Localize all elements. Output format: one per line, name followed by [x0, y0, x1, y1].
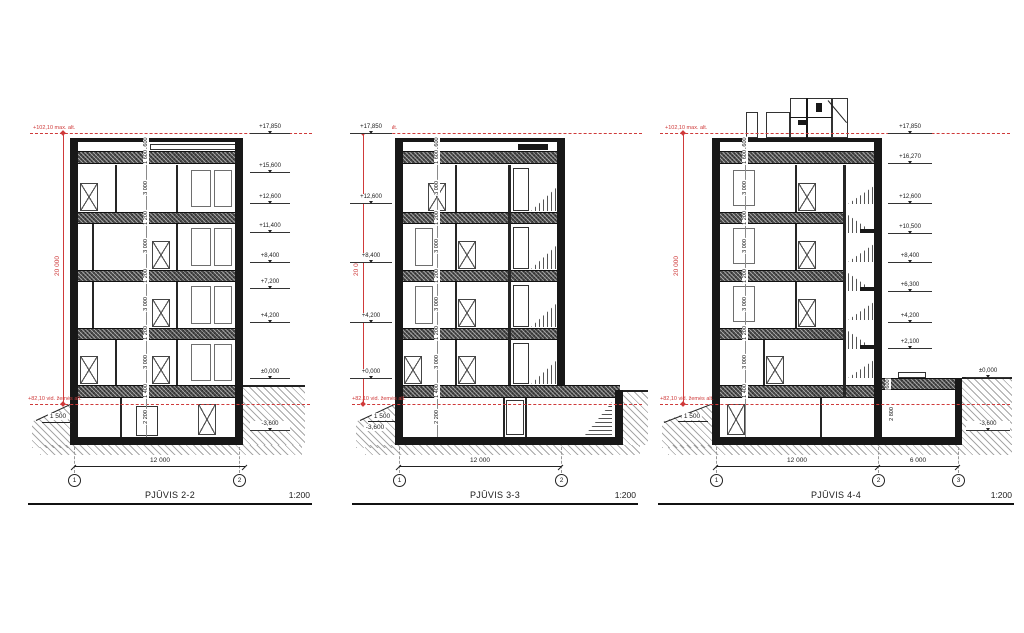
- floor-dim: 3 000: [434, 354, 440, 370]
- level-marker: +11,400: [250, 223, 290, 233]
- level-label: +4,200: [362, 313, 381, 319]
- roof-slab: [403, 151, 557, 164]
- level-label: +0,000: [362, 369, 381, 375]
- roof-coping: [395, 138, 565, 142]
- window-symbol: [191, 228, 211, 266]
- floor-dim: 3 000: [742, 180, 748, 196]
- window-symbol: [214, 286, 232, 324]
- level-label: +10,500: [899, 224, 921, 230]
- level-marker: +4,200: [250, 313, 290, 323]
- floor-dim: 1 200: [143, 210, 149, 226]
- red-marker-icon: [360, 401, 366, 407]
- floor-dim: 1 400: [143, 383, 149, 399]
- level-triangle-icon: [908, 289, 912, 292]
- red-max-altitude-line: [352, 133, 642, 134]
- level-label: ±0,000: [261, 369, 279, 375]
- dim-line: [368, 421, 396, 422]
- floor-dim: 1 200: [434, 210, 440, 226]
- basement-stair: [585, 402, 612, 435]
- level-label: ±0,000: [979, 368, 997, 374]
- door-symbol: [458, 299, 476, 327]
- red-height-dim-line: [63, 133, 64, 404]
- grid-bubble-1: 1: [68, 474, 81, 487]
- level-label: +8,400: [362, 253, 381, 259]
- scale-label: 1:200: [950, 490, 1012, 500]
- grid-dim-line: [399, 466, 561, 467]
- level-triangle-icon: [908, 231, 912, 234]
- floor-dim: 1 600: [434, 149, 440, 165]
- interior-wall: [455, 165, 457, 212]
- grid-bubble-1: 1: [710, 474, 723, 487]
- level-label: +6,300: [901, 282, 920, 288]
- ground-offset-dim: 1 500: [48, 413, 68, 420]
- level-label: +11,400: [259, 223, 280, 229]
- scale-label: 1:200: [580, 490, 636, 500]
- ground-hatch: [40, 445, 302, 455]
- level-marker: +4,200: [350, 313, 392, 323]
- grid-dim-label: 12 000: [468, 457, 492, 464]
- level-marker: +6,300: [888, 282, 932, 292]
- roof-structure-panel: [816, 103, 822, 112]
- stair-flight: [848, 186, 874, 204]
- terrain-line: [243, 385, 305, 387]
- floor-slab: [720, 270, 843, 282]
- floor-dim: 1 200: [143, 268, 149, 284]
- ground-alt-label: +82,10 vid. žemės alt.: [660, 396, 714, 402]
- level-triangle-icon: [268, 428, 272, 431]
- level-label: +12,600: [259, 194, 281, 200]
- door-symbol: [727, 404, 745, 435]
- level-triangle-icon: [268, 286, 272, 289]
- interior-wall: [455, 340, 457, 385]
- interior-wall: [795, 282, 797, 328]
- red-marker-icon: [680, 130, 686, 136]
- level-marker: +8,400: [350, 253, 392, 263]
- floor-dim: 3 000: [742, 296, 748, 312]
- level-triangle-icon: [908, 131, 912, 134]
- door-symbol: [766, 356, 784, 384]
- terrain-line: [623, 390, 648, 392]
- window-symbol: [214, 170, 232, 207]
- title-underline: [658, 503, 1014, 505]
- level-label: +4,200: [261, 313, 280, 319]
- stair-flight: [531, 187, 557, 211]
- foundation-slab: [70, 437, 243, 445]
- red-marker-icon: [60, 130, 66, 136]
- ground-hatch: [662, 404, 712, 448]
- level-triangle-icon: [369, 201, 373, 204]
- interior-wall: [176, 224, 178, 270]
- interior-wall: [176, 340, 178, 385]
- ground-alt-label: +82,10 vid. žemės alt.: [28, 396, 82, 402]
- grid-dim-label: 12 000: [148, 457, 172, 464]
- floor-dim: 1 200: [434, 268, 440, 284]
- extension-line: [561, 447, 562, 473]
- roof-structure: [766, 112, 790, 138]
- interior-wall: [176, 165, 178, 212]
- roof-coping: [70, 138, 243, 142]
- level-label: -3,600: [261, 421, 278, 427]
- extension-line: [239, 447, 240, 473]
- extension-line: [74, 447, 75, 473]
- extension-line: [958, 447, 959, 473]
- level-triangle-icon: [369, 320, 373, 323]
- grid-dim-line: [878, 466, 958, 467]
- grid-bubble-2: 2: [233, 474, 246, 487]
- red-max-altitude-line: [660, 133, 1010, 134]
- window-symbol: [214, 344, 232, 381]
- level-marker: +16,270: [888, 154, 932, 164]
- door-symbol: [152, 356, 170, 384]
- roof-slab: [78, 151, 235, 164]
- depth-label: -3,600: [364, 424, 386, 431]
- level-marker: +2,100: [888, 339, 932, 349]
- door-symbol: [198, 404, 216, 435]
- roof-coping: [712, 138, 882, 142]
- level-triangle-icon: [908, 320, 912, 323]
- interior-wall: [455, 282, 457, 328]
- basement-wall-right: [615, 390, 623, 445]
- floor-dim: 1 600: [143, 149, 149, 165]
- level-marker: +12,600: [250, 194, 290, 204]
- stair-flight: [848, 302, 874, 320]
- interior-wall: [176, 282, 178, 328]
- floor-dim: 1 200: [742, 210, 748, 226]
- floor-slab: [78, 328, 235, 340]
- roof-structure: [832, 98, 848, 138]
- stair-flight: [531, 303, 557, 327]
- door-symbol: [458, 241, 476, 269]
- roof-hatch-box: [518, 144, 548, 150]
- level-label: +7,200: [261, 279, 280, 285]
- interior-wall: [455, 224, 457, 270]
- level-label: +2,100: [901, 339, 920, 345]
- floor-dim: 3 000: [143, 354, 149, 370]
- scale-label: 1:200: [252, 490, 310, 500]
- dim-line: [678, 421, 708, 422]
- stair-landing: [860, 345, 877, 349]
- level-marker: +17,850: [888, 124, 932, 134]
- window-symbol: [191, 170, 211, 207]
- overall-height-dim: 20 000: [55, 255, 61, 277]
- floor-dim: 1 400: [742, 383, 748, 399]
- level-marker: -3,600: [250, 421, 290, 431]
- annex-slab-dim: 600: [885, 378, 891, 389]
- floor-dim: 3 000: [143, 180, 149, 196]
- floor-dim: 600: [742, 136, 748, 147]
- ground-offset-dim: 1 500: [372, 413, 392, 420]
- level-marker: +10,500: [888, 224, 932, 234]
- stair-flight: [848, 244, 874, 262]
- level-triangle-icon: [908, 260, 912, 263]
- stair-flight: [531, 245, 557, 269]
- extension-line: [399, 447, 400, 473]
- level-marker: ±0,000: [966, 368, 1010, 378]
- interior-wall: [92, 282, 94, 328]
- foundation-slab: [395, 437, 623, 445]
- level-triangle-icon: [908, 201, 912, 204]
- stair-door: [513, 227, 529, 269]
- floor-slab: [78, 212, 235, 224]
- floor-dim: 2 200: [434, 409, 440, 425]
- grid-dim-label: 12 000: [785, 457, 809, 464]
- level-label: +17,850: [259, 124, 281, 130]
- level-label: +4,200: [901, 313, 920, 319]
- level-triangle-icon: [369, 131, 373, 134]
- level-marker: +8,400: [250, 253, 290, 263]
- grid-bubble-1: 1: [393, 474, 406, 487]
- level-label: +12,600: [899, 194, 921, 200]
- ground-hatch: [243, 385, 305, 445]
- overall-height-dim: 20 000: [674, 255, 680, 277]
- level-marker: +17,850: [350, 124, 392, 134]
- grid-dim-line: [716, 466, 878, 467]
- level-label: +15,600: [259, 163, 281, 169]
- floor-dim: 2 200: [143, 409, 149, 425]
- level-label: -3,600: [979, 421, 996, 427]
- level-label: +8,400: [901, 253, 920, 259]
- level-marker: +17,850: [250, 124, 290, 134]
- stair-landing: [860, 229, 877, 233]
- door-symbol: [152, 299, 170, 327]
- ground-hatch: [365, 445, 640, 455]
- level-triangle-icon: [268, 201, 272, 204]
- level-marker: +0,000: [350, 369, 392, 379]
- ground-hatch: [668, 445, 1012, 455]
- level-triangle-icon: [986, 375, 990, 378]
- stair-flight: [848, 360, 874, 378]
- roof-structure-mullion: [806, 98, 808, 138]
- ground-slab: [78, 385, 235, 398]
- title-underline: [352, 503, 638, 505]
- ground-offset-dim: 1 500: [682, 413, 702, 420]
- annex-roof-slab: [882, 378, 962, 390]
- floor-dim: 3 000: [434, 296, 440, 312]
- door-symbol: [404, 356, 422, 384]
- floor-dim: 3 000: [742, 238, 748, 254]
- roof-structure: [790, 98, 832, 138]
- dim-line: [42, 422, 72, 423]
- stair-landing: [860, 287, 877, 291]
- floor-dim: 600: [434, 136, 440, 147]
- annex-room-dim: 2 800: [889, 406, 895, 422]
- floor-dim: 3 000: [434, 238, 440, 254]
- ground-hatch: [962, 377, 1012, 445]
- level-label: +8,400: [261, 253, 280, 259]
- floor-slab: [403, 270, 557, 282]
- roof-structure: [746, 112, 758, 138]
- door-symbol: [458, 356, 476, 384]
- door-symbol: [798, 241, 816, 269]
- stair-door: [513, 343, 529, 384]
- ground-hatch: [32, 404, 70, 448]
- extension-line: [716, 447, 717, 473]
- floor-dim: 600: [143, 136, 149, 147]
- level-marker: +12,600: [888, 194, 932, 204]
- level-marker: +15,600: [250, 163, 290, 173]
- door-symbol: [80, 356, 98, 384]
- extension-line: [878, 447, 879, 473]
- door-symbol: [80, 183, 98, 211]
- red-ground-line: [30, 404, 310, 405]
- ground-hatch: [623, 390, 648, 445]
- level-triangle-icon: [268, 131, 272, 134]
- stair-door: [513, 285, 529, 327]
- window-symbol: [214, 228, 232, 266]
- interior-wall: [763, 340, 765, 385]
- floor-dim: 1 200: [434, 325, 440, 341]
- level-marker: +7,200: [250, 279, 290, 289]
- window-symbol: [415, 228, 433, 266]
- basement-door: [506, 400, 524, 435]
- parapet-step: [150, 144, 238, 150]
- floor-dim: 1 600: [742, 149, 748, 165]
- door-symbol: [152, 241, 170, 269]
- stair-wall: [508, 165, 511, 385]
- level-triangle-icon: [268, 376, 272, 379]
- floor-dim: 1 200: [742, 325, 748, 341]
- level-triangle-icon: [268, 260, 272, 263]
- level-marker: +4,200: [888, 313, 932, 323]
- exterior-wall-right: [235, 138, 243, 445]
- interior-wall: [115, 165, 117, 212]
- level-label: +12,600: [360, 194, 382, 200]
- annex-wall-right: [955, 378, 962, 445]
- level-label: +16,270: [899, 154, 921, 160]
- level-marker: +12,600: [350, 194, 392, 204]
- floor-slab: [403, 328, 557, 340]
- ground-alt-label: +82,10 vid. žemės alt.: [352, 396, 406, 402]
- interior-wall: [795, 224, 797, 270]
- level-marker: -3,600: [966, 421, 1010, 431]
- level-label: +17,850: [899, 124, 921, 130]
- max-alt-label: +102,10 max. alt.: [33, 125, 75, 131]
- floor-dim: 3 000: [143, 296, 149, 312]
- interior-wall: [795, 165, 797, 212]
- max-alt-label: +102,10 max. alt.: [665, 125, 707, 131]
- level-triangle-icon: [268, 170, 272, 173]
- door-symbol: [798, 299, 816, 327]
- annex-skylight: [898, 372, 926, 378]
- exterior-wall-right: [557, 138, 565, 385]
- window-symbol: [415, 286, 433, 324]
- floor-dim: 1 200: [143, 325, 149, 341]
- interior-wall: [115, 340, 117, 385]
- window-symbol: [191, 286, 211, 324]
- floor-dim: 1 400: [434, 383, 440, 399]
- grid-dim-label: 6 000: [908, 457, 928, 464]
- floor-slab: [720, 212, 843, 224]
- roof-structure-rail: [790, 117, 832, 118]
- red-ground-line: [660, 404, 1010, 405]
- level-marker: ±0,000: [250, 369, 290, 379]
- red-marker-icon: [680, 401, 686, 407]
- floor-dim: 3 000: [434, 180, 440, 196]
- stair-door: [513, 168, 529, 211]
- level-triangle-icon: [268, 230, 272, 233]
- dim-tick-icon: [242, 464, 248, 470]
- level-triangle-icon: [908, 161, 912, 164]
- level-triangle-icon: [369, 376, 373, 379]
- level-triangle-icon: [369, 260, 373, 263]
- floor-dim: 3 000: [143, 238, 149, 254]
- door-symbol: [798, 183, 816, 211]
- grid-bubble-2: 2: [872, 474, 885, 487]
- grid-bubble-3: 3: [952, 474, 965, 487]
- exterior-wall-right: [874, 138, 882, 445]
- window-symbol: [191, 344, 211, 381]
- level-triangle-icon: [908, 346, 912, 349]
- stair-shaft-wall: [843, 165, 846, 398]
- title-underline: [28, 503, 312, 505]
- level-label: +17,850: [360, 124, 382, 130]
- floor-dim: 1 200: [742, 268, 748, 284]
- floor-dim: 3 000: [742, 354, 748, 370]
- level-triangle-icon: [268, 320, 272, 323]
- floor-slab: [720, 328, 843, 340]
- red-height-dim-line: [683, 133, 684, 404]
- level-triangle-icon: [986, 428, 990, 431]
- red-ground-line: [352, 404, 642, 405]
- roof-structure-panel: [798, 120, 806, 125]
- floor-slab: [78, 270, 235, 282]
- grid-bubble-2: 2: [555, 474, 568, 487]
- stair-flight: [531, 360, 557, 384]
- red-height-dim-line: [363, 133, 364, 404]
- interior-wall: [92, 224, 94, 270]
- foundation-slab: [712, 437, 962, 445]
- grid-dim-line: [74, 466, 245, 467]
- level-marker: +8,400: [888, 253, 932, 263]
- floor-slab: [403, 212, 557, 224]
